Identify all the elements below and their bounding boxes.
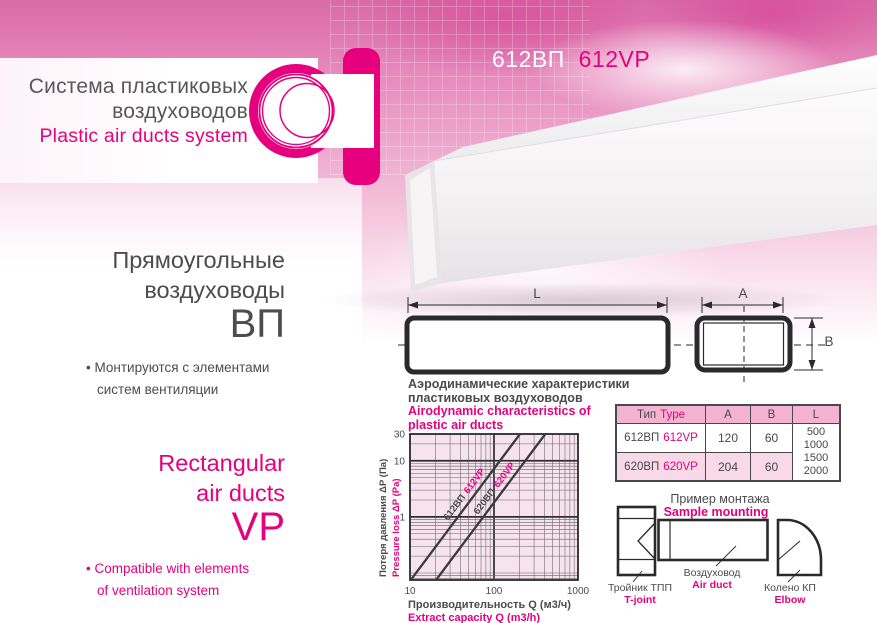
brand-title: Система пластиковых воздуховодов Plastic… — [0, 74, 248, 149]
header-type-ru: Тип — [637, 409, 656, 421]
duct-label-ru: Воздуховод — [667, 567, 757, 579]
tjoint-label-en: T-joint — [595, 594, 685, 606]
chart-heading-ru-line1: Аэродинамические характеристики — [408, 378, 648, 392]
chart-heading: Аэродинамические характеристики пластико… — [408, 378, 648, 432]
dim-label-l: L — [524, 286, 550, 301]
spec-table-header-b: B — [750, 406, 792, 423]
photo-shadow — [320, 282, 840, 318]
chart-heading-en-line1: Airodynamic characteristics of — [408, 405, 648, 419]
dim-label-a: A — [730, 286, 756, 301]
aerodynamic-chart: 612ВП612VP620ВП620VP30101101001000Произв… — [378, 425, 600, 623]
table-row-612-type: 612ВП 612VP — [617, 423, 705, 452]
duct-length-outline — [407, 318, 668, 372]
x-axis-label-ru: Производительность Q (м3/ч) — [408, 599, 571, 611]
product-code-en: 612VP — [579, 46, 651, 72]
en-bullet-line1: • Compatible with elements — [86, 558, 316, 580]
x-axis-label-en: Extract capacity Q (m3/h) — [408, 612, 540, 623]
y-tick-label: 30 — [394, 430, 406, 441]
brand-title-ru-line2: воздуховодов — [0, 99, 248, 124]
ru-bullet-line2: систем вентиляции — [86, 379, 316, 401]
header-type-en: Type — [660, 409, 685, 421]
en-product-code: VP — [0, 505, 285, 550]
x-tick-label: 1000 — [567, 586, 590, 597]
brand-title-en: Plastic air ducts system — [0, 124, 248, 149]
spec-table-header-a: A — [705, 406, 750, 423]
x-tick-label: 100 — [486, 586, 503, 597]
table-row-620-type: 620ВП 620VP — [617, 452, 705, 480]
round-duct-logo-icon — [245, 48, 385, 198]
y-axis-label-ru: Потеря давления ΔP (Па) — [378, 459, 389, 577]
product-code-title: 612ВП 612VP — [492, 46, 650, 73]
y-tick-label: 10 — [394, 456, 406, 467]
arrowhead — [809, 360, 816, 370]
elbow-shape — [778, 520, 821, 575]
en-bullet-line2: of ventilation system — [86, 580, 316, 602]
chart-heading-ru-line2: пластиковых воздуховодов — [408, 392, 648, 406]
dim-label-b: B — [816, 334, 842, 349]
en-heading: Rectangular air ducts — [0, 448, 285, 508]
spec-table: Тип Type A B L 612ВП 612VP 120 60 500 10… — [615, 404, 841, 482]
table-row-612-a: 120 — [705, 423, 750, 452]
elbow-label-en: Elbow — [745, 594, 835, 606]
table-l-values: 500 1000 1500 2000 — [792, 423, 839, 480]
y-axis-label-en: Pressure loss ΔP (Pa) — [391, 478, 402, 577]
mounting-title-en: Sample mounting — [631, 505, 801, 519]
table-row-612-b: 60 — [750, 423, 792, 452]
en-heading-line2: air ducts — [0, 478, 285, 508]
ru-heading: Прямоугольные воздуховоды — [0, 245, 285, 305]
en-bullet: • Compatible with elements of ventilatio… — [86, 558, 316, 602]
x-tick-label: 10 — [404, 586, 416, 597]
spec-table-header-type: Тип Type — [617, 406, 705, 423]
duct-label-en: Air duct — [667, 579, 757, 591]
mounting-title-ru: Пример монтажа — [635, 492, 805, 506]
ru-heading-line1: Прямоугольные — [0, 245, 285, 275]
en-heading-line1: Rectangular — [0, 448, 285, 478]
ru-product-code: ВП — [0, 302, 285, 347]
cross-section-outline — [697, 318, 790, 370]
table-row-620-b: 60 — [750, 452, 792, 480]
product-photo — [320, 55, 877, 318]
arrowhead — [809, 318, 816, 328]
brand-title-ru-line1: Система пластиковых — [0, 74, 248, 99]
duct-shape — [659, 520, 768, 560]
spec-table-header-l: L — [792, 406, 839, 423]
ru-heading-line2: воздуховоды — [0, 275, 285, 305]
ru-bullet-line1: • Монтируются с элементами — [86, 357, 316, 379]
product-code-ru: 612ВП — [492, 46, 565, 72]
catalog-page: Система пластиковых воздуховодов Plastic… — [0, 0, 877, 623]
table-row-620-a: 204 — [705, 452, 750, 480]
ru-bullet: • Монтируются с элементами систем вентил… — [86, 357, 316, 401]
elbow-label-ru: Колено КП — [745, 582, 835, 594]
